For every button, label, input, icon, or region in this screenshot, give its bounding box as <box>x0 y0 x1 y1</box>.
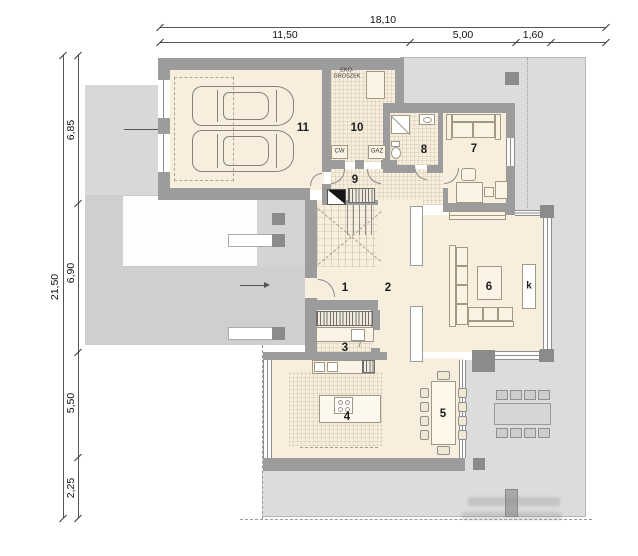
wall-house-north <box>383 103 515 113</box>
dining-chair <box>420 388 429 398</box>
sofa6-back-vertical <box>449 245 456 327</box>
dim-left-seg-3: 5,50 <box>65 393 77 413</box>
paving-edge-right <box>585 57 586 517</box>
courtyard <box>123 195 257 267</box>
dining-chair <box>458 402 467 412</box>
column-north-east <box>505 72 519 85</box>
window-room7-east <box>506 138 515 166</box>
kitchen-sink-1 <box>314 362 325 372</box>
sofa6-back-horizontal <box>468 321 514 327</box>
corridor-mat <box>327 189 346 205</box>
entrance-arrow-head <box>264 282 270 288</box>
dim-left-seg-2: 6,90 <box>65 263 77 283</box>
dining-chair <box>420 402 429 412</box>
driveway-west-strip <box>85 195 123 345</box>
dim-top-segments-line <box>160 42 606 43</box>
dim-left-total: 21,50 <box>49 274 61 300</box>
terrace-chair <box>510 428 522 438</box>
wall-hall-west-upper <box>305 200 317 278</box>
dining-chair <box>437 446 450 455</box>
floor-plan-canvas: EKO-GROSZEK CW GAZ <box>0 0 638 556</box>
room-label-6: 6 <box>486 281 492 293</box>
window-kitchen-west <box>263 352 272 458</box>
pantry-appliance <box>351 329 365 341</box>
sofa7-arm-left <box>446 114 452 140</box>
desk-chair <box>461 168 476 181</box>
terrace-chair <box>524 428 536 438</box>
terrace-chair <box>496 428 508 438</box>
terrace-chair <box>538 428 550 438</box>
paving-edge-top <box>400 57 586 58</box>
watermark-line-2 <box>462 512 562 520</box>
sofa7-cushion-2 <box>473 122 495 138</box>
wall-room8-south-b <box>427 165 443 173</box>
window-living-east <box>543 218 552 349</box>
wall-boiler-south-a <box>331 160 345 169</box>
garage-door-2-leaf <box>163 134 164 172</box>
room-label-9: 9 <box>352 174 358 186</box>
sofa7-back <box>452 114 495 122</box>
terrace-table <box>494 403 551 425</box>
car-2 <box>192 130 294 172</box>
wall-hall-pantry-divider <box>305 300 378 310</box>
gas-label: GAZ <box>371 149 383 156</box>
column-terrace-nw <box>472 350 495 372</box>
side-table <box>495 181 508 199</box>
room-label-8: 8 <box>421 144 427 156</box>
dim-top-seg-3: 1,60 <box>523 29 543 41</box>
room-label-5: 5 <box>440 408 446 420</box>
sofa6-corner <box>456 304 468 325</box>
boiler-furnace <box>366 71 385 99</box>
shower <box>391 115 410 134</box>
dining-chair <box>420 416 429 426</box>
room-label-4: 4 <box>344 411 350 423</box>
terrace-chair <box>510 390 522 400</box>
entrance-door-opening <box>305 278 317 298</box>
fuel-store-label: EKO-GROSZEK <box>330 68 364 81</box>
car-2-windshield-line <box>217 134 218 168</box>
burner-3 <box>338 407 343 412</box>
sofa7-arm-right <box>495 114 501 140</box>
terrace-chair <box>496 390 508 400</box>
corridor-radiator <box>348 188 375 203</box>
dim-top-seg-2: 5,00 <box>453 29 473 41</box>
planter-upper-pier <box>272 234 285 247</box>
dim-top-total-line <box>160 27 606 28</box>
dining-chair <box>420 430 429 440</box>
sofa7-cushion-1 <box>452 122 473 138</box>
car-2-cabin <box>223 136 269 166</box>
washbasin-bowl <box>423 117 432 123</box>
side-square <box>484 187 494 197</box>
staircase-landing-line <box>347 205 348 235</box>
burner-1 <box>338 400 343 405</box>
dim-left-seg-4: 2,25 <box>65 478 77 498</box>
wall-room8-south-a <box>383 165 415 173</box>
shower-diagonal <box>391 116 410 135</box>
sofa6-cushion-v3 <box>456 285 468 304</box>
fireplace-label: k <box>526 281 532 292</box>
room-label-3: 3 <box>342 342 348 354</box>
room-label-11: 11 <box>297 122 309 134</box>
partition-hall-living-lower <box>410 306 423 362</box>
dim-top-seg-1: 11,50 <box>272 29 298 41</box>
column-living-ne <box>540 205 554 218</box>
dining-chair <box>458 388 467 398</box>
terrace-south-strip <box>262 470 462 517</box>
washbasin <box>419 114 435 125</box>
room-label-1: 1 <box>342 282 348 294</box>
terrace-south-east <box>460 360 586 517</box>
watermark-line-1 <box>468 497 560 506</box>
planter-lower-pier <box>272 327 285 340</box>
terrace-chair <box>538 390 550 400</box>
sofa6-cushion-h1 <box>468 307 483 321</box>
entrance-arrow-line <box>240 285 264 286</box>
room-label-10: 10 <box>351 122 364 134</box>
wall-garage-west-b <box>158 118 170 134</box>
garage-door-1 <box>158 80 170 118</box>
room-label-2: 2 <box>385 282 391 294</box>
partition-hall-living-upper <box>410 206 423 266</box>
dim-left-seg-1: 6,85 <box>65 120 77 140</box>
desk <box>456 182 483 203</box>
wall-boiler-south-b <box>355 160 364 169</box>
pantry-counter <box>316 327 374 342</box>
car-1-cabin <box>223 92 269 121</box>
dining-chair <box>458 430 467 440</box>
car-2-rear-line <box>276 134 277 168</box>
dim-left-total-line <box>63 55 64 518</box>
paving-east-upper <box>513 105 586 218</box>
sofa6-cushion-h3 <box>498 307 513 321</box>
pantry-radiator <box>316 311 373 326</box>
roof-overhang-dotted-line <box>527 58 528 208</box>
kitchen-dashed-line <box>300 447 378 448</box>
wall-garage-boiler-divider <box>322 68 331 172</box>
sofa6-cushion-h2 <box>483 307 498 321</box>
entrance-walkway <box>257 195 307 267</box>
entrance-pier <box>272 213 285 225</box>
toilet-bowl <box>391 147 401 159</box>
window-living-north <box>515 210 540 216</box>
garage-door-2 <box>158 134 170 172</box>
dining-chair <box>458 416 467 426</box>
terrace-chair <box>524 390 536 400</box>
car-1 <box>192 86 294 126</box>
paving-north-east <box>400 58 586 105</box>
staircase-treads <box>347 205 377 235</box>
wall-room8-room7-divider <box>438 113 443 165</box>
wall-garage-south <box>158 188 310 200</box>
burner-2 <box>345 400 350 405</box>
wall-kitchen-bay-pier <box>263 352 272 360</box>
wall-garage-west-a <box>158 58 170 80</box>
garage-door-1-leaf <box>163 80 164 118</box>
sofa6-cushion-v2 <box>456 266 468 285</box>
wall-south-band <box>263 458 465 471</box>
car-1-rear-line <box>276 90 277 122</box>
wall-garage-north <box>158 58 404 70</box>
kitchen-sink-2 <box>327 362 338 372</box>
column-terrace-ne <box>539 350 552 362</box>
kitchen-counter-hatch <box>362 360 375 373</box>
sideboard <box>449 211 506 220</box>
paving-east-mid <box>552 215 586 365</box>
hot-water-label: CW <box>335 149 345 156</box>
column-terrace-sw <box>473 458 485 470</box>
car-1-windshield-line <box>217 90 218 122</box>
planter-lower <box>228 327 273 340</box>
wall-kitchen-north <box>272 352 387 360</box>
room-label-7: 7 <box>471 143 477 155</box>
dim-top-total: 18,10 <box>370 14 396 26</box>
planter-upper <box>228 234 273 247</box>
sofa6-cushion-v1 <box>456 247 468 266</box>
dim-left-segments-line <box>78 55 79 518</box>
dining-chair <box>437 371 450 380</box>
window-living-south <box>495 351 540 360</box>
